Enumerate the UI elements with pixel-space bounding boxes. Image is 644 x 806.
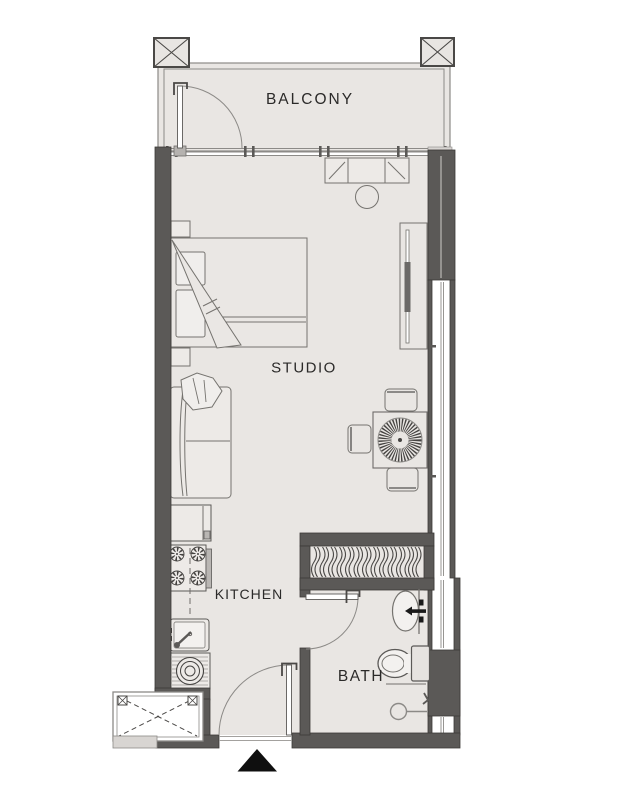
column-marker (154, 38, 189, 67)
kitchen-sink (168, 619, 209, 651)
floor-plan: BALCONY STUDIO KITCHEN BATH (0, 0, 644, 806)
service-shaft (113, 692, 203, 748)
toilet (378, 646, 430, 681)
balcony-label: BALCONY (266, 91, 354, 109)
dresser (325, 158, 409, 183)
fridge (169, 505, 211, 541)
column-marker (421, 38, 454, 66)
stool (356, 186, 379, 209)
tv-unit (400, 223, 427, 349)
bath-label: BATH (338, 668, 384, 686)
kitchen-label: KITCHEN (215, 586, 283, 602)
bed (171, 238, 307, 348)
sofa (170, 373, 231, 498)
floor-plan-drawing (0, 0, 644, 806)
nightstand (171, 221, 190, 237)
tv-screen (405, 262, 411, 312)
studio-label: STUDIO (271, 360, 337, 377)
entrance-threshold (219, 737, 292, 741)
washing-machine (170, 653, 210, 689)
nightstand (171, 348, 190, 366)
entrance-arrow (238, 749, 278, 772)
